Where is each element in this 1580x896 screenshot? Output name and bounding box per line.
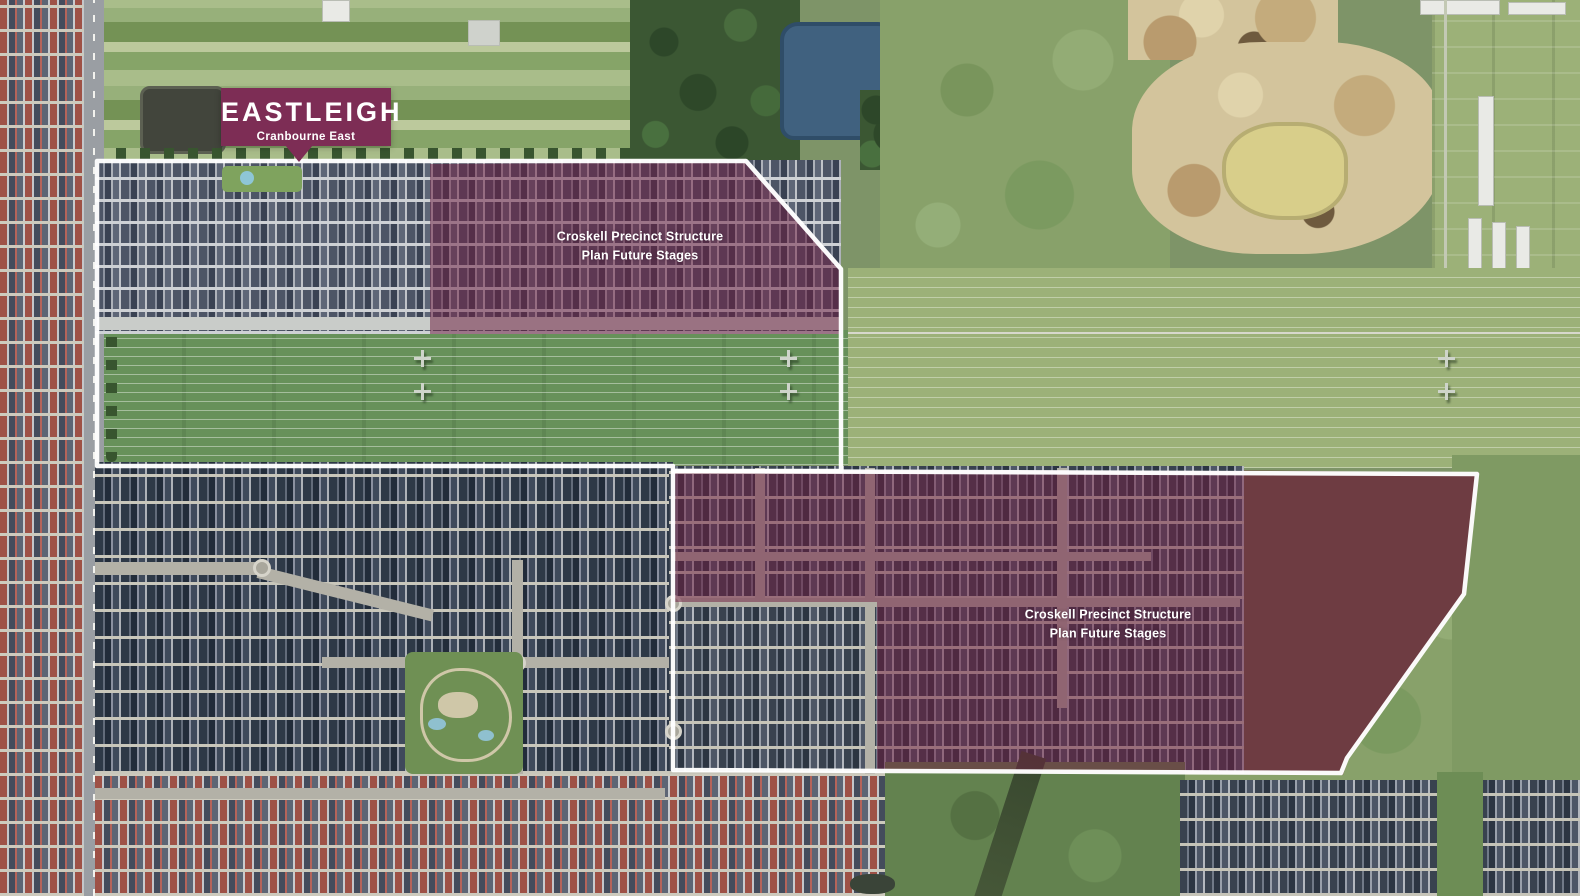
eastleigh-badge: EASTLEIGH Cranbourne East bbox=[221, 88, 391, 146]
development-title: EASTLEIGH bbox=[221, 88, 391, 128]
label-line: Plan Future Stages bbox=[1025, 624, 1192, 643]
badge-pointer bbox=[285, 145, 313, 162]
aerial-masterplan-map: Croskell Precinct Structure Plan Future … bbox=[0, 0, 1580, 896]
label-line: Croskell Precinct Structure bbox=[557, 227, 724, 246]
label-line: Croskell Precinct Structure bbox=[1025, 605, 1192, 624]
future-stages-label-south: Croskell Precinct Structure Plan Future … bbox=[1025, 605, 1192, 643]
development-subtitle: Cranbourne East bbox=[221, 131, 391, 143]
label-line: Plan Future Stages bbox=[557, 246, 724, 265]
future-stages-label-north: Croskell Precinct Structure Plan Future … bbox=[557, 227, 724, 265]
